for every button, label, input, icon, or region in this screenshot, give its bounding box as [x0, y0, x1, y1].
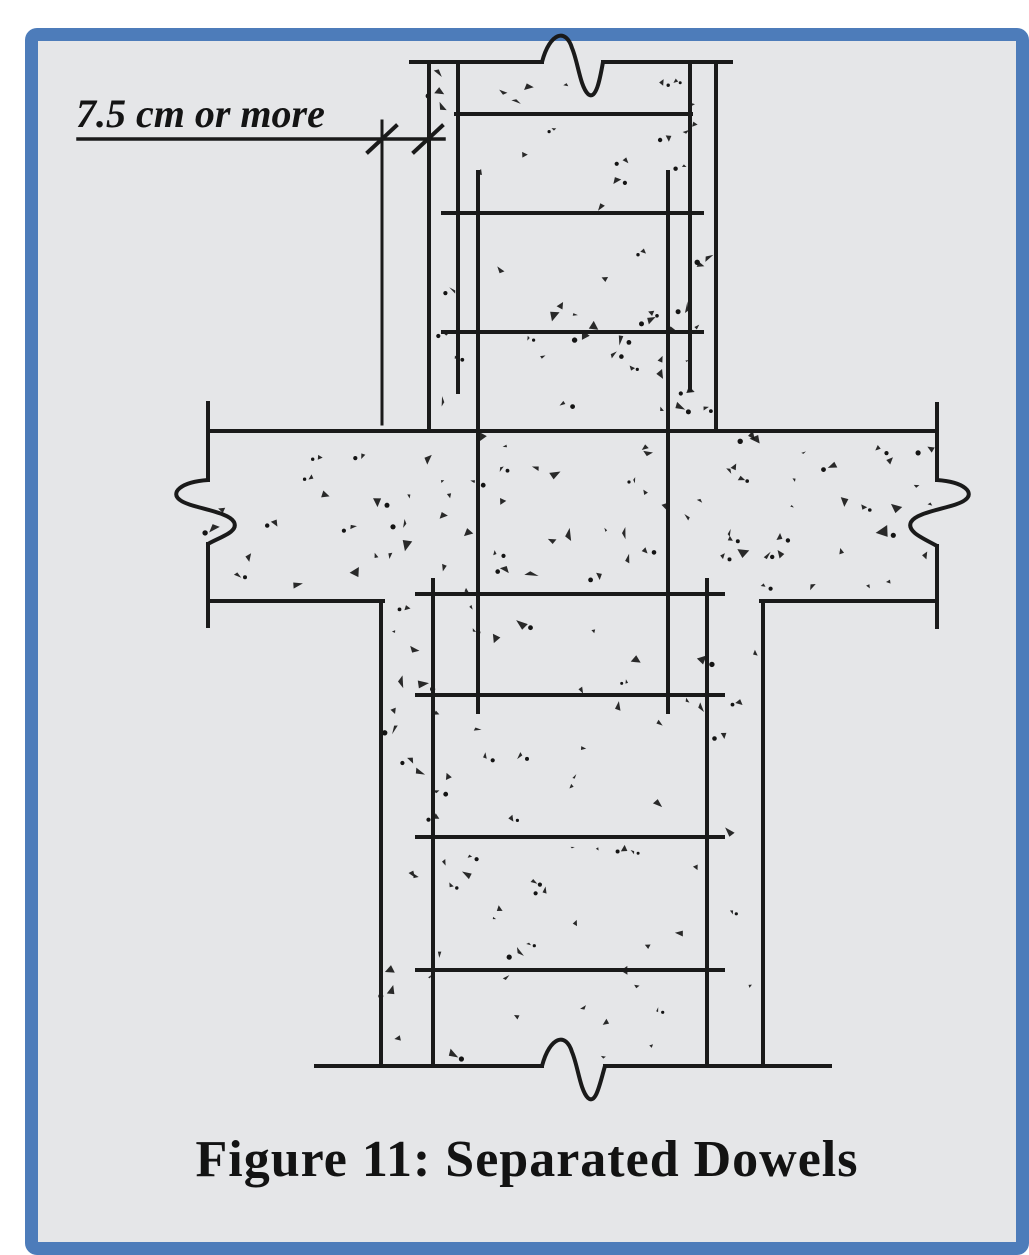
stipple-speck	[572, 312, 578, 315]
stipple-speck	[604, 528, 608, 532]
stipple-speck	[646, 316, 656, 326]
break-symbol-top	[542, 36, 603, 96]
stipple-dot	[501, 554, 505, 558]
stipple-speck	[511, 99, 520, 105]
stipple-speck	[532, 464, 540, 472]
dimension-annotation-text: 7.5 cm or more	[76, 90, 325, 137]
stipple-dot	[202, 530, 207, 535]
stipple-speck	[449, 1048, 459, 1058]
stipple-dot	[385, 503, 390, 508]
stipple-speck	[703, 253, 714, 262]
stipple-speck	[317, 454, 323, 459]
stipple-dot	[728, 557, 732, 561]
stipple-speck	[514, 1014, 520, 1020]
stipple-speck	[659, 79, 665, 86]
stipple-speck	[514, 616, 527, 630]
stipple-speck	[685, 697, 689, 703]
stipple-dot	[588, 578, 593, 583]
stipple-speck	[493, 917, 496, 920]
stipple-speck	[551, 127, 556, 131]
stipple-dot	[436, 334, 440, 338]
stipple-speck	[692, 122, 698, 128]
stipple-speck	[508, 814, 516, 822]
stipple-speck	[522, 81, 534, 92]
stipple-speck	[433, 86, 444, 97]
stipple-speck	[727, 528, 732, 536]
stipple-speck	[549, 468, 562, 480]
stipple-speck	[926, 444, 935, 453]
stipple-dot	[572, 337, 577, 342]
stipple-speck	[580, 1005, 587, 1011]
stipple-speck	[407, 494, 410, 498]
stipple-speck	[674, 402, 687, 413]
stipple-speck	[539, 354, 545, 360]
stipple-speck	[462, 872, 472, 880]
engineering-drawing	[0, 0, 1029, 1255]
stipple-dot	[891, 533, 896, 538]
stipple-dot	[548, 130, 551, 133]
stipple-dot	[738, 439, 743, 444]
stipple-speck	[886, 456, 895, 465]
stipple-speck	[308, 474, 314, 481]
stipple-dot	[491, 758, 495, 762]
stipple-speck	[694, 324, 699, 329]
stipple-speck	[866, 583, 872, 588]
stipple-speck	[928, 502, 934, 507]
stipple-dot	[661, 1011, 664, 1014]
stipple-speck	[828, 462, 838, 468]
stipple-speck	[570, 845, 574, 849]
stipple-speck	[921, 550, 928, 559]
stipple-dot	[709, 662, 714, 667]
stipple-dot	[506, 469, 510, 473]
stipple-speck	[589, 320, 599, 329]
stipple-dot	[525, 757, 529, 761]
stipple-speck	[596, 847, 600, 851]
stipple-speck	[629, 655, 640, 666]
stipple-speck	[683, 514, 690, 521]
break-symbol-bottom	[542, 1040, 605, 1100]
stipple-speck	[413, 874, 418, 878]
stipple-dot	[627, 480, 630, 483]
stipple-speck	[489, 634, 500, 645]
stipple-speck	[645, 943, 652, 950]
stipple-speck	[437, 396, 447, 406]
stipple-speck	[519, 151, 527, 159]
stipple-dot	[676, 309, 681, 314]
stipple-dot	[712, 736, 717, 741]
stipple-speck	[441, 480, 445, 483]
stipple-dot	[455, 886, 458, 889]
stipple-speck	[620, 527, 630, 539]
stipple-speck	[569, 784, 573, 789]
stipple-dot	[528, 625, 533, 630]
stipple-speck	[499, 88, 507, 95]
stipple-speck	[473, 726, 482, 732]
stipple-speck	[436, 950, 444, 958]
stipple-speck	[397, 675, 405, 689]
stipple-speck	[447, 493, 452, 498]
stipple-dot	[443, 792, 448, 797]
stipple-speck	[735, 698, 744, 706]
stipple-speck	[372, 553, 379, 560]
stipple-dot	[770, 555, 774, 559]
stipple-speck	[598, 203, 605, 212]
stipple-speck	[572, 774, 577, 779]
stipple-dot	[679, 391, 683, 395]
stipple-speck	[640, 248, 647, 255]
stipple-dot	[636, 368, 639, 371]
stipple-dot	[658, 138, 662, 142]
stipple-dot	[736, 539, 740, 543]
stipple-speck	[656, 1007, 659, 1012]
stipple-speck	[492, 550, 497, 556]
stipple-speck	[656, 720, 664, 727]
stipple-dot	[884, 451, 888, 455]
stipple-dot	[735, 912, 738, 915]
stipple-dot	[639, 321, 644, 326]
stipple-speck	[482, 752, 490, 760]
stipple-dot	[516, 819, 519, 822]
stipple-speck	[291, 578, 303, 589]
stipple-dot	[481, 483, 486, 488]
stipple-speck	[410, 646, 420, 653]
stipple-dot	[533, 944, 536, 947]
stipple-speck	[401, 539, 413, 552]
stipple-dot	[443, 291, 447, 295]
stipple-speck	[839, 497, 849, 507]
stipple-speck	[415, 676, 429, 689]
stipple-speck	[470, 478, 476, 484]
stipple-speck	[737, 475, 746, 484]
stipple-speck	[498, 465, 504, 472]
stipple-speck	[642, 488, 648, 495]
stipple-speck	[875, 445, 881, 452]
stipple-speck	[439, 101, 446, 111]
stipple-speck	[526, 942, 532, 947]
stipple-speck	[500, 564, 511, 576]
stipple-speck	[622, 157, 630, 164]
stipple-dot	[679, 81, 682, 84]
stipple-speck	[446, 773, 452, 780]
stipple-speck	[496, 266, 506, 274]
stipple-speck	[859, 503, 867, 511]
stipple-speck	[416, 768, 425, 775]
stipple-speck	[591, 629, 596, 634]
stipple-speck	[660, 406, 664, 411]
stipple-speck	[390, 706, 398, 714]
stipple-speck	[385, 985, 398, 997]
stipple-speck	[696, 498, 702, 503]
stipple-speck	[434, 68, 443, 79]
stipple-dot	[619, 354, 624, 359]
stipple-speck	[875, 524, 888, 537]
stipple-speck	[648, 311, 654, 316]
stipple-dot	[673, 167, 677, 171]
stipple-speck	[580, 745, 586, 750]
stipple-dot	[916, 450, 921, 455]
stipple-dot	[342, 529, 346, 533]
stipple-speck	[719, 552, 725, 559]
stipple-speck	[624, 679, 629, 684]
stipple-speck	[682, 164, 687, 167]
stipple-speck	[515, 752, 523, 760]
stipple-speck	[514, 947, 524, 958]
stipple-speck	[387, 552, 394, 559]
stipple-speck	[530, 879, 537, 884]
stipple-speck	[801, 451, 806, 454]
stipple-dot	[475, 857, 479, 861]
stipple-speck	[467, 855, 472, 860]
stipple-dot	[400, 761, 404, 765]
stipple-speck	[563, 83, 568, 88]
stipple-speck	[630, 849, 636, 854]
stipple-dot	[709, 409, 713, 413]
stipple-speck	[913, 482, 919, 488]
stipple-speck	[702, 404, 709, 411]
stipple-speck	[886, 580, 891, 584]
stipple-speck	[271, 518, 281, 528]
stipple-dot	[667, 84, 670, 87]
stipple-speck	[319, 490, 330, 501]
stipple-speck	[775, 548, 785, 558]
figure-caption: Figure 11: Separated Dowels	[25, 1130, 1029, 1189]
stipple-speck	[672, 78, 678, 83]
stipple-dot	[303, 478, 306, 481]
stipple-speck	[497, 496, 507, 506]
stipple-speck	[234, 572, 241, 577]
stipple-speck	[609, 349, 617, 358]
stipple-speck	[449, 285, 456, 294]
stipple-speck	[615, 701, 621, 711]
stipple-speck	[649, 1044, 654, 1048]
stipple-dot	[615, 162, 619, 166]
stipple-speck	[502, 975, 510, 981]
stipple-speck	[524, 569, 538, 582]
stipple-speck	[469, 605, 473, 610]
stipple-dot	[538, 883, 542, 887]
stipple-speck	[792, 478, 796, 482]
stipple-speck	[611, 175, 621, 184]
stipple-dot	[532, 339, 535, 342]
stipple-dot	[311, 458, 314, 461]
stipple-speck	[619, 845, 628, 854]
stipple-speck	[463, 528, 473, 536]
stipple-speck	[628, 366, 635, 372]
stipple-speck	[349, 523, 357, 530]
stipple-dot	[426, 818, 430, 822]
stipple-dot	[655, 314, 659, 318]
stipple-dot	[637, 852, 640, 855]
stipple-speck	[441, 858, 448, 865]
stipple-dot	[265, 523, 269, 527]
stipple-dot	[695, 260, 700, 265]
stipple-dot	[507, 955, 512, 960]
stipple-dot	[636, 253, 639, 256]
stipple-speck	[614, 334, 626, 346]
stipple-speck	[359, 453, 365, 460]
stipple-dot	[627, 340, 632, 345]
stipple-speck	[400, 519, 408, 528]
stipple-speck	[751, 650, 757, 658]
stipple-dot	[686, 409, 691, 414]
stipple-speck	[497, 905, 504, 913]
stipple-speck	[349, 567, 359, 577]
stipple-dot	[460, 358, 464, 362]
stipple-speck	[641, 547, 649, 555]
stipple-speck	[601, 274, 609, 282]
stipple-speck	[601, 1056, 606, 1059]
stipple-speck	[721, 731, 728, 739]
stipple-speck	[692, 863, 699, 870]
stipple-dot	[534, 891, 538, 895]
stipple-speck	[596, 573, 602, 580]
stipple-speck	[422, 452, 432, 464]
stipple-speck	[730, 463, 737, 471]
stipple-speck	[666, 135, 672, 143]
stipple-speck	[394, 1035, 402, 1043]
stipple-dot	[652, 550, 657, 555]
stipple-speck	[449, 882, 455, 887]
stipple-speck	[603, 1019, 611, 1028]
stipple-dot	[353, 456, 357, 460]
stipple-speck	[655, 369, 664, 380]
stipple-speck	[526, 336, 531, 341]
stipple-speck	[406, 755, 415, 763]
stipple-speck	[728, 536, 734, 542]
stipple-speck	[675, 929, 685, 939]
stipple-speck	[547, 309, 559, 322]
stipple-speck	[503, 444, 508, 448]
stipple-dot	[616, 850, 620, 854]
stipple-speck	[736, 548, 750, 559]
stipple-speck	[440, 512, 449, 521]
stipple-speck	[245, 553, 254, 562]
stipple-speck	[556, 302, 563, 310]
stipple-speck	[578, 686, 586, 694]
stipple-speck	[623, 554, 633, 565]
stipple-speck	[634, 985, 640, 989]
stipple-speck	[439, 562, 448, 571]
stipple-speck	[404, 605, 411, 611]
stipple-speck	[774, 533, 783, 542]
stipple-dot	[623, 181, 627, 185]
stipple-speck	[572, 919, 578, 926]
stipple-dot	[821, 467, 826, 472]
stipple-speck	[730, 909, 735, 914]
stipple-speck	[392, 725, 398, 735]
stipple-speck	[385, 965, 395, 973]
stipple-speck	[888, 501, 902, 514]
stipple-speck	[548, 535, 557, 544]
stipple-speck	[653, 798, 665, 809]
stipple-dot	[731, 703, 735, 707]
stipple-dot	[745, 479, 749, 483]
stipple-dot	[620, 682, 623, 685]
stipple-speck	[748, 984, 752, 988]
stipple-speck	[657, 356, 666, 364]
stipple-speck	[207, 522, 220, 535]
stipple-speck	[790, 505, 794, 509]
stipple-speck	[837, 548, 845, 556]
stipple-speck	[541, 886, 547, 894]
stipple-dot	[398, 608, 402, 612]
stipple-dot	[570, 404, 575, 409]
stipple-dot	[495, 569, 500, 574]
stipple-speck	[392, 630, 395, 633]
stipple-speck	[558, 401, 565, 407]
stipple-speck	[807, 582, 816, 591]
break-symbol-right	[910, 480, 969, 546]
stipple-dot	[243, 575, 247, 579]
stipple-speck	[564, 528, 577, 541]
stipple-dot	[769, 587, 773, 591]
stipple-speck	[761, 583, 767, 588]
stipple-speck	[632, 477, 638, 483]
stipple-dot	[868, 508, 872, 512]
stipple-dot	[459, 1056, 464, 1061]
stipple-speck	[371, 494, 384, 507]
stipple-dot	[390, 524, 395, 529]
stipple-dot	[786, 538, 790, 542]
